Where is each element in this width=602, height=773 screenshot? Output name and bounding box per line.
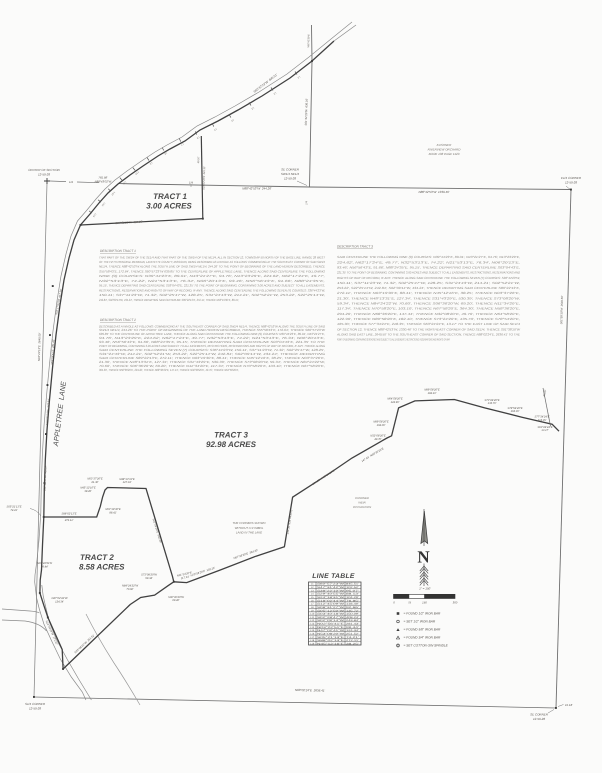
svg-text:N01°42’29”E: N01°42’29”E xyxy=(307,34,310,48)
svg-text:OF SECTION 12, THENCE N88°42'5: OF SECTION 12, THENCE N88°42'53”W, 1330.… xyxy=(337,327,521,331)
svg-text:150: 150 xyxy=(422,601,427,605)
svg-text:E1/4 CORNER: E1/4 CORNER xyxy=(561,176,582,180)
svg-text:38.25’: 38.25’ xyxy=(346,642,360,645)
svg-text:69.20’: 69.20’ xyxy=(172,599,180,602)
svg-text:CENTER OF SECTION: CENTER OF SECTION xyxy=(28,168,60,172)
svg-text:SAID CENTERLINE THE FOLLOWING: SAID CENTERLINE THE FOLLOWING NINE (9) C… xyxy=(337,255,520,259)
svg-text:192.00’: 192.00’ xyxy=(377,424,386,427)
svg-text:12-50-28: 12-50-28 xyxy=(29,707,41,711)
svg-text:124.34’: 124.34’ xyxy=(55,601,64,604)
svg-text:RESTRICTIONS, RESERVATIONS AND: RESTRICTIONS, RESERVATIONS AND RIGHTS OF… xyxy=(99,288,325,292)
svg-text:242.84', S02°09'14”W, 434.24',: 242.84', S02°09'14”W, 434.24', THENCE DE… xyxy=(98,298,239,302)
svg-text:N88°02’24”E 2636.41’: N88°02’24”E 2636.41’ xyxy=(295,688,326,693)
svg-text:TRACT 1: TRACT 1 xyxy=(153,192,187,201)
svg-text:150.11', S37°11'23”W, 71.32',: 150.11', S37°11'23”W, 71.32', S02°25'47”… xyxy=(337,281,521,285)
svg-text:272.11', THENCE N03°19'30”E, 8: 272.11', THENCE N03°19'30”E, 88.41', THE… xyxy=(336,291,521,295)
svg-text:WITHOUT A SYMBOL: WITHOUT A SYMBOL xyxy=(235,526,264,530)
svg-text:S1/4 CORNER: S1/4 CORNER xyxy=(25,702,46,706)
svg-text:122.90’: 122.90’ xyxy=(391,401,400,404)
svg-text:OF THE FIFTH PRINCIPAL MERIDIA: OF THE FIFTH PRINCIPAL MERIDIAN, LAFAYET… xyxy=(99,260,325,264)
svg-text:THAT PART OF THE SW1/4 OF THE: THAT PART OF THE SW1/4 OF THE SE1/4 AND … xyxy=(99,255,326,259)
svg-text:N88°42’53”W 244.26’: N88°42’53”W 244.26’ xyxy=(242,187,272,191)
svg-text:88.41’: 88.41’ xyxy=(109,511,117,514)
svg-text:364.30', THENCE N58°36'20”E, 2: 364.30', THENCE N58°36'20”E, 294.20', TH… xyxy=(99,368,239,372)
svg-text:300: 300 xyxy=(453,601,458,605)
svg-text:70.60’: 70.60’ xyxy=(126,588,134,591)
svg-text:DESCRIPTION TRACT 2: DESCRIPTION TRACT 2 xyxy=(100,318,136,322)
svg-text:THE CORNERS SHOWN: THE CORNERS SHOWN xyxy=(233,521,267,525)
svg-text:12-50-28: 12-50-28 xyxy=(284,177,296,181)
svg-text:59.34’: 59.34’ xyxy=(145,577,153,580)
svg-text:165.30’: 165.30’ xyxy=(511,410,520,413)
svg-text:= FOUND 3/4” IRON BAR: = FOUND 3/4” IRON BAR xyxy=(404,636,441,640)
svg-text:135.70’: 135.70’ xyxy=(488,402,497,405)
svg-text:WEIR: WEIR xyxy=(358,500,365,504)
svg-text:NE1/4, THENCE N88°42'53”W ALON: NE1/4, THENCE N88°42'53”W ALONG THE SOUT… xyxy=(99,265,326,269)
svg-text:122.90', THENCE N89°58'20”E, 1: 122.90', THENCE N89°58'20”E, 182.10', TH… xyxy=(337,317,520,321)
svg-text:= FOUND 1/2” IRON BAR: = FOUND 1/2” IRON BAR xyxy=(404,612,441,616)
svg-text:POINT OF BEGINNING, CONTAINING: POINT OF BEGINNING, CONTAINING 92.98 ACR… xyxy=(337,338,451,342)
svg-text:12-50-28: 12-50-28 xyxy=(533,717,545,721)
svg-text:127.34’: 127.34’ xyxy=(123,481,132,484)
svg-text:21.30', THENCE N48°13'31”E, 12: 21.30', THENCE N48°13'31”E, 127.34', THE… xyxy=(336,296,521,300)
svg-text:99.44’: 99.44’ xyxy=(41,565,49,568)
svg-text:KUSHNER: KUSHNER xyxy=(355,496,369,500)
svg-text:75: 75 xyxy=(408,601,412,605)
svg-text:L19: L19 xyxy=(310,642,315,645)
svg-text:TRACT 3: TRACT 3 xyxy=(214,431,248,440)
svg-text:OCCUPATION: OCCUPATION xyxy=(353,505,372,509)
svg-text:95.15', THENCE DEPARTING SAID: 95.15', THENCE DEPARTING SAID CENTERLINE… xyxy=(99,284,325,288)
svg-text:8.58 ACRES: 8.58 ACRES xyxy=(79,563,125,572)
svg-text:SE CORNER: SE CORNER xyxy=(281,168,300,172)
svg-text:74.21’: 74.21’ xyxy=(10,509,18,512)
svg-text:SE CORNER: SE CORNER xyxy=(530,713,549,717)
svg-text:N88°42’53”W 1330.46’: N88°42’53”W 1330.46’ xyxy=(418,190,449,194)
svg-text:272.11’: 272.11’ xyxy=(64,519,74,522)
svg-text:182.10’: 182.10’ xyxy=(428,392,437,395)
svg-text:224.62', N62°17'24”E, 49.77',: 224.62', N62°17'24”E, 49.77', N32°53'13”… xyxy=(335,260,520,264)
svg-text:S88°02’13”E: S88°02’13”E xyxy=(61,513,76,516)
svg-text:218.35’: 218.35’ xyxy=(537,419,547,422)
svg-text:DESCRIPTION TRACT 3: DESCRIPTION TRACT 3 xyxy=(337,245,373,249)
svg-text:15.18’: 15.18’ xyxy=(565,703,573,707)
svg-text:294.20', THENCE N68°36'20”E, 1: 294.20', THENCE N68°36'20”E, 147.44', TH… xyxy=(336,312,521,316)
svg-text:TRACT 2: TRACT 2 xyxy=(80,553,114,562)
svg-text:= SET COTTON GIN SPINDLE: = SET COTTON GIN SPINDLE xyxy=(404,644,449,648)
svg-text:N45°12’16”E: N45°12’16”E xyxy=(317,642,345,645)
svg-text:= FOUND 5/8” IRON BAR: = FOUND 5/8” IRON BAR xyxy=(404,628,441,632)
svg-text:N32°53'13”E, 74.22', N21°53'13: N32°53'13”E, 74.22', N21°53'13”E, 76.34'… xyxy=(99,279,325,283)
svg-text:N88°43’02”W: N88°43’02”W xyxy=(95,179,112,183)
svg-text:93.46', N56°56'43”E, 91.66', N: 93.46', N56°56'43”E, 91.66', N88°24'35”E… xyxy=(337,266,520,270)
svg-text:DESCRIPTION TRACT 1: DESCRIPTION TRACT 1 xyxy=(100,249,136,253)
svg-text:ALONG SAID EAST LINE, 2640.50': ALONG SAID EAST LINE, 2640.50' TO THE SO… xyxy=(336,332,521,336)
svg-text:13.17’: 13.17’ xyxy=(541,429,549,432)
svg-text:1” = 150’: 1” = 150’ xyxy=(419,587,431,591)
svg-text:49.50’: 49.50’ xyxy=(197,156,200,163)
svg-text:1/4: 1/4 xyxy=(69,180,73,184)
svg-text:38.25’: 38.25’ xyxy=(84,490,92,493)
svg-text:3.00 ACRES: 3.00 ACRES xyxy=(146,202,192,211)
svg-text:RIVERVIEW ORCHARD: RIVERVIEW ORCHARD xyxy=(428,148,462,152)
svg-text:12-50-28: 12-50-28 xyxy=(38,173,50,177)
svg-text:150.11', S37°11'23”W, 71.32',: 150.11', S37°11'23”W, 71.32', S02°25'47”… xyxy=(99,293,326,297)
svg-text:165.30', THENCE S77°34'24”E, 2: 165.30', THENCE S77°34'24”E, 218.35', TH… xyxy=(337,322,520,326)
svg-text:LAND IN THE LAKE: LAND IN THE LAKE xyxy=(236,531,262,535)
svg-text:BOOK 138 PAGE 1120: BOOK 138 PAGE 1120 xyxy=(429,152,460,156)
svg-text:KUSHNER: KUSHNER xyxy=(437,143,453,147)
svg-text:49.70’: 49.70’ xyxy=(374,438,382,441)
svg-text:1/4: 1/4 xyxy=(305,201,308,205)
svg-text:S55°58'43”E, 172.64', THENCE S: S55°58'43”E, 172.64', THENCE S60°57'23”W… xyxy=(99,270,326,274)
svg-text:253.22', S22°25'14”W, 242.84',: 253.22', S22°25'14”W, 242.84', S02°09'14… xyxy=(336,286,520,290)
svg-text:RIGHTS OF WAY OF RECORD, IF AN: RIGHTS OF WAY OF RECORD, IF ANY. THENCE … xyxy=(337,276,520,280)
svg-text:59.34', THENCE N84°24'22”W, 70: 59.34', THENCE N84°24'22”W, 70.60', THEN… xyxy=(337,302,520,306)
svg-text:117.34', THENCE N70°58'20”E, 1: 117.34', THENCE N70°58'20”E, 103.10', TH… xyxy=(337,307,520,311)
svg-text:12-50-28: 12-50-28 xyxy=(565,181,577,185)
svg-text:= SET 1/2” IRON BAR: = SET 1/2” IRON BAR xyxy=(404,620,436,624)
svg-text:221.35' TO THE POINT OF BEGINN: 221.35' TO THE POINT OF BEGINNING, CONTA… xyxy=(336,271,521,275)
svg-text:SW1/4 NE1/4: SW1/4 NE1/4 xyxy=(281,172,300,176)
svg-text:21.30’: 21.30’ xyxy=(90,481,99,484)
svg-text:92.98 ACRES: 92.98 ACRES xyxy=(206,440,257,449)
svg-text:NINE (9) COURSES: N39°44'23”E,: NINE (9) COURSES: N39°44'23”E, 89.01', N… xyxy=(99,274,325,278)
svg-text:N01°23’13”E 2640.50’: N01°23’13”E 2640.50’ xyxy=(37,332,42,361)
svg-text:LINE TABLE: LINE TABLE xyxy=(312,573,355,580)
svg-text:1/4: 1/4 xyxy=(189,181,193,185)
svg-text:S01°38’10”W 2640.50’: S01°38’10”W 2640.50’ xyxy=(559,295,564,324)
